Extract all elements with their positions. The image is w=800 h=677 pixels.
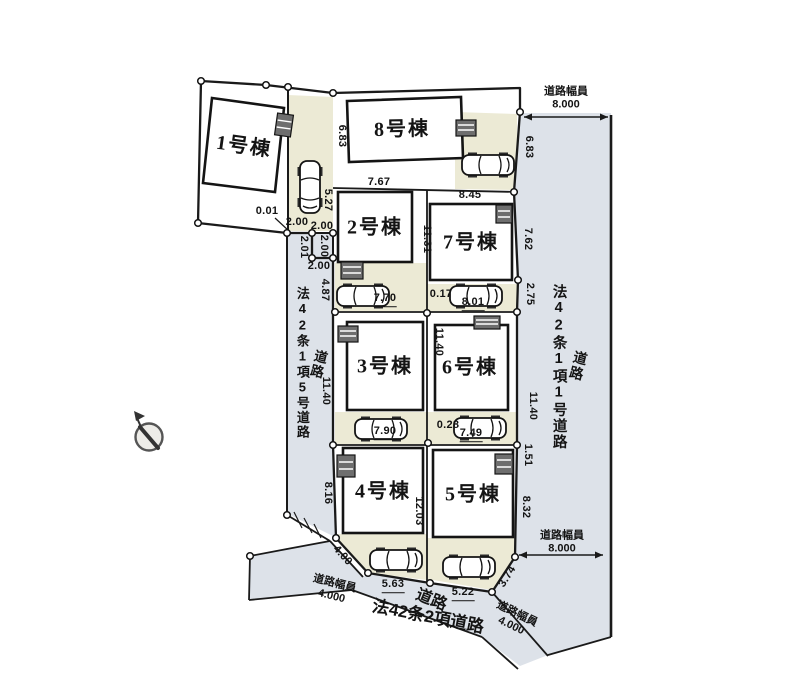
dim-8-45: 8.45 <box>459 190 482 204</box>
car-lot4 <box>370 548 422 573</box>
dim-8-01: 8.01 <box>462 297 485 311</box>
car-lot5 <box>443 555 495 580</box>
dim-0-17: 0.17 <box>430 289 453 301</box>
dim-1-51: 1.51 <box>521 444 533 467</box>
dim-7-62: 7.62 <box>521 228 533 251</box>
dim-12-03: 12.03 <box>412 496 424 525</box>
dim-jog-top: 2.00 <box>311 221 334 233</box>
plan-drawing <box>0 0 800 677</box>
road-width-mid-right: 道路幅員 8.000 <box>540 529 584 554</box>
dim-0-28: 0.28 <box>437 420 460 432</box>
building-4-label: 4号棟 <box>355 482 411 503</box>
dim-11-40-road: 11.40 <box>319 377 331 405</box>
dim-4-87: 4.87 <box>318 279 330 302</box>
dim-7-49: 7.49 <box>460 428 483 442</box>
building-8-label: 8号棟 <box>374 119 430 141</box>
road-left-type-label: 法42条1項5号道路 <box>295 287 309 440</box>
dim-6-83-right: 6.83 <box>522 136 534 159</box>
building-5-label: 5号棟 <box>445 485 501 506</box>
dim-0-01: 0.01 <box>256 206 279 218</box>
site-plan: 1号棟 8号棟 2号棟 7号棟 3号棟 6号棟 4号棟 5号棟 法42条1項5号… <box>0 0 800 677</box>
car-lot1 <box>298 161 323 213</box>
north-compass-icon <box>134 411 163 451</box>
building-7-label: 7号棟 <box>443 233 499 254</box>
road-width-top-right: 道路幅員 8.000 <box>544 85 588 110</box>
building-3-label: 3号棟 <box>357 357 413 378</box>
dim-8-16: 8.16 <box>321 482 333 505</box>
dim-5-27: 5.27 <box>321 189 333 212</box>
dim-7-90: 7.90 <box>374 426 397 440</box>
dim-11-40-right: 11.40 <box>526 392 538 420</box>
building-2-label: 2号棟 <box>347 218 403 239</box>
dim-11-40-lot6: 11.40 <box>432 328 444 356</box>
dim-5-22: 5.22 <box>452 587 475 601</box>
dim-7-70: 7.70 <box>374 293 397 307</box>
dim-7-67: 7.67 <box>368 177 391 189</box>
dim-2-75: 2.75 <box>523 283 535 306</box>
dim-5-63: 5.63 <box>382 579 405 593</box>
dim-8-32: 8.32 <box>519 496 531 519</box>
road-right-type-label: 法42条1項1号道路 <box>550 284 565 450</box>
building-6-label: 6号棟 <box>442 358 498 379</box>
dim-11-31: 11.31 <box>420 225 432 253</box>
dim-jog-left: 2.01 <box>297 236 309 259</box>
dim-jog-right: 2.00 <box>317 235 329 258</box>
dim-6-83-lot8: 6.83 <box>335 125 347 148</box>
dim-2-00-a: 2.00 <box>286 217 309 229</box>
car-lot8 <box>462 153 514 178</box>
dim-jog-bottom: 2.00 <box>308 261 331 273</box>
